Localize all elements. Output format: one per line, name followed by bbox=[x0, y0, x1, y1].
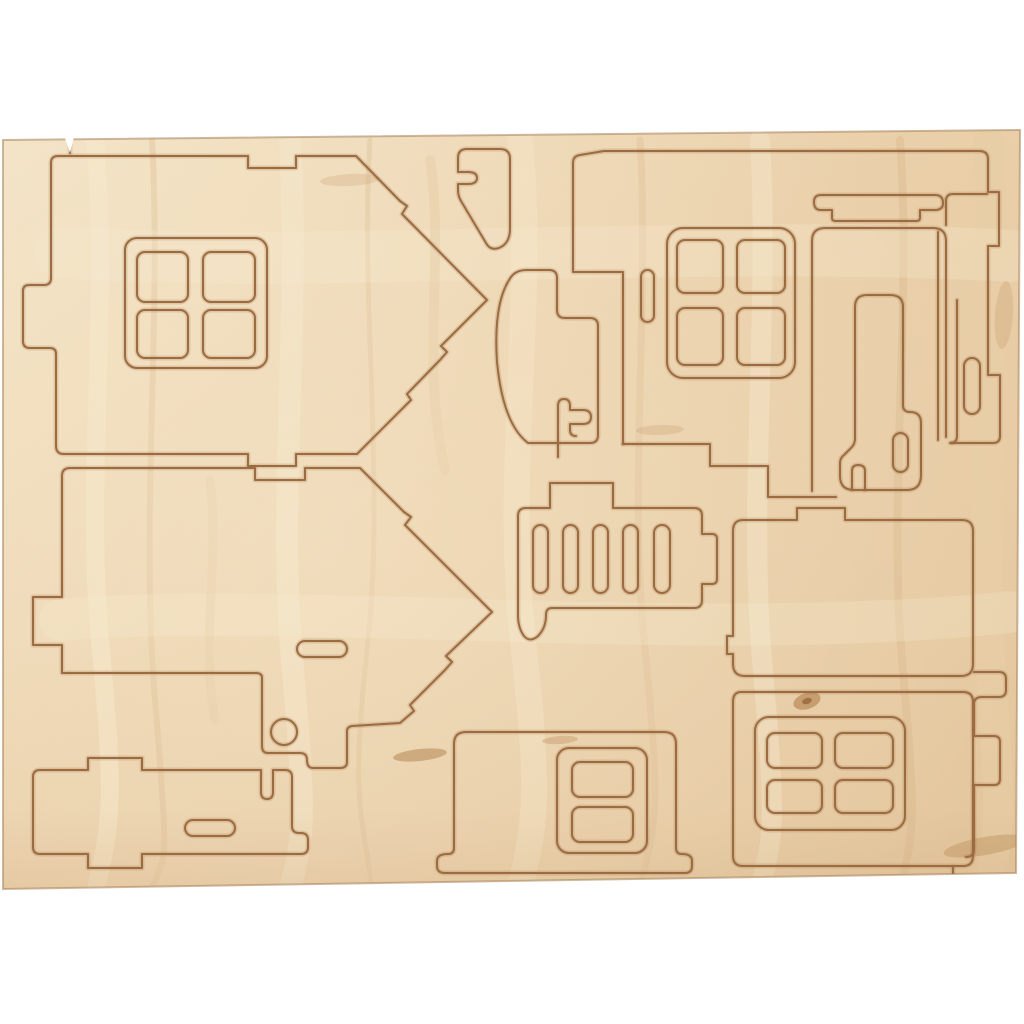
plywood-sheet-drawing bbox=[0, 0, 1024, 1024]
photo-canvas: Photograph of a light birch plywood shee… bbox=[0, 0, 1024, 1024]
plywood-sheet-photo: Photograph of a light birch plywood shee… bbox=[0, 0, 1024, 1024]
sheet-highlight bbox=[0, 130, 1024, 890]
